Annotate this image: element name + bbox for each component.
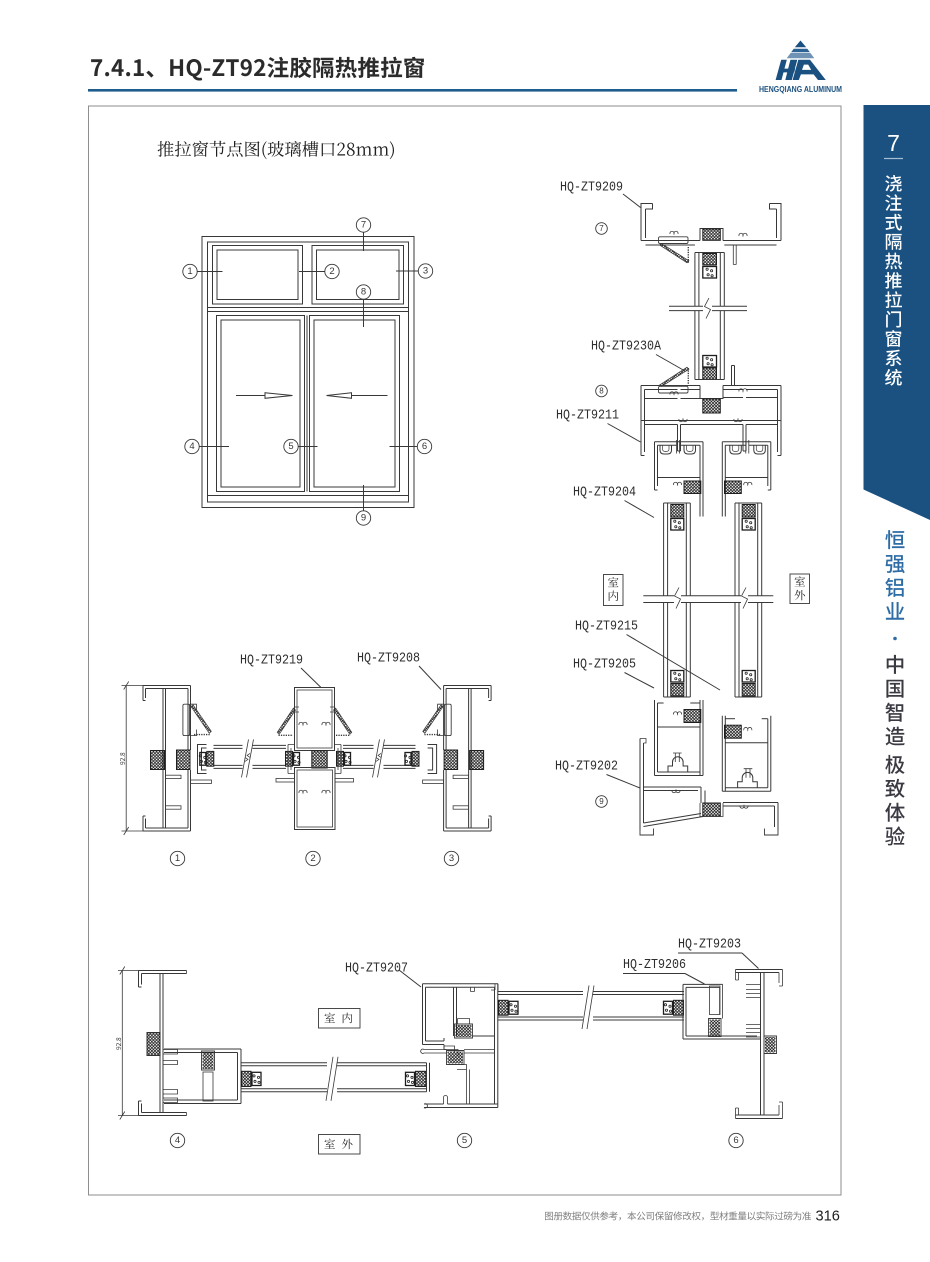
svg-text:HENGQIANG ALUMINUM: HENGQIANG ALUMINUM [759,84,842,94]
svg-text:8: 8 [361,287,366,298]
svg-text:1: 1 [175,853,180,864]
svg-text:1: 1 [187,266,192,277]
svg-text:HQ-ZT9204: HQ-ZT9204 [573,485,636,501]
svg-text:4: 4 [175,1135,180,1146]
svg-text:HQ-ZT9211: HQ-ZT9211 [556,408,619,424]
svg-text:7: 7 [887,130,900,156]
svg-text:3: 3 [449,853,454,864]
svg-text:HQ-ZT9205: HQ-ZT9205 [573,657,636,673]
svg-text:7: 7 [599,224,604,233]
svg-text:8: 8 [599,387,604,396]
svg-text:6: 6 [422,441,427,452]
svg-text:HQ-ZT9206: HQ-ZT9206 [623,957,686,973]
svg-text:316: 316 [816,1209,840,1225]
svg-text:HQ-ZT9230A: HQ-ZT9230A [591,339,661,355]
svg-text:HQ-ZT9207: HQ-ZT9207 [345,961,408,977]
svg-text:HQ-ZT9219: HQ-ZT9219 [240,653,303,669]
svg-text:3: 3 [423,266,428,277]
svg-text:9: 9 [599,797,604,806]
svg-text:7: 7 [361,220,366,231]
svg-text:HQ-ZT9215: HQ-ZT9215 [575,619,638,635]
svg-text:5: 5 [288,441,293,452]
svg-text:HQ-ZT9202: HQ-ZT9202 [555,759,618,775]
svg-text:5: 5 [462,1135,467,1146]
svg-text:2: 2 [310,853,315,864]
svg-text:HQ-ZT9203: HQ-ZT9203 [678,937,741,953]
svg-text:4: 4 [189,441,194,452]
svg-text:HQ-ZT9209: HQ-ZT9209 [560,180,623,196]
svg-text:6: 6 [733,1135,738,1146]
svg-text:9: 9 [361,513,366,524]
svg-text:2: 2 [329,266,334,277]
svg-text:HQ-ZT9208: HQ-ZT9208 [357,651,420,667]
